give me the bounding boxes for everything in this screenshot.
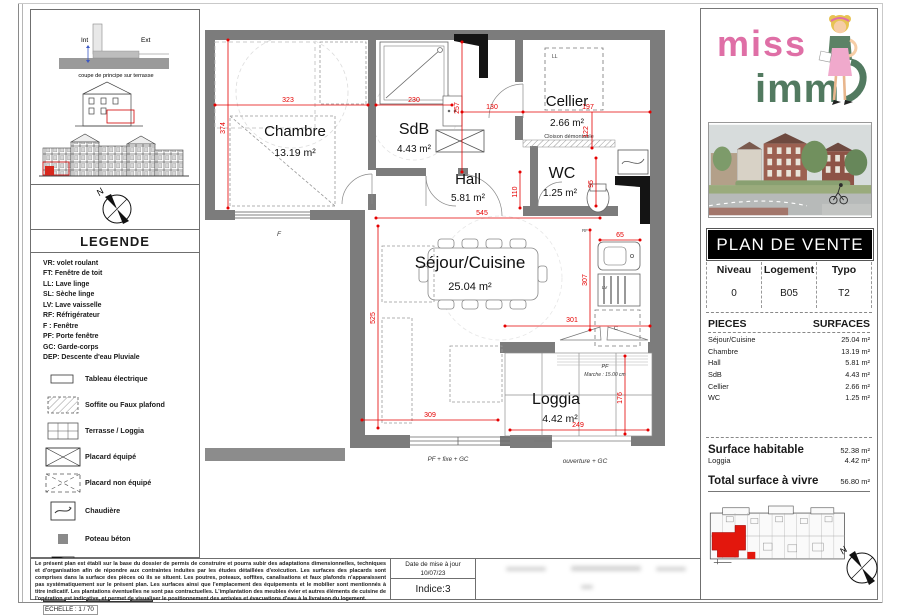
surfaces-summary: Surface habitable52.38 m² Loggia4.42 m² … xyxy=(708,444,870,492)
street-elevation xyxy=(39,134,189,176)
legend-item: Tableau électrique xyxy=(31,366,199,392)
room-label-hall: Hall xyxy=(455,171,481,188)
shower xyxy=(380,42,448,104)
placard-equipe-hall xyxy=(436,130,484,152)
piece-row: SdB4.43 m² xyxy=(708,369,870,381)
svg-text:230: 230 xyxy=(408,97,420,104)
room-label-wc: WC xyxy=(549,165,576,182)
pf-fixe-gc-note: PF + fixe + GC xyxy=(428,456,469,463)
room-area-chambre: 13.19 m² xyxy=(274,147,316,159)
key-plan xyxy=(705,500,855,572)
gaine-technique-shaft-wc xyxy=(615,176,650,224)
cloison-demontable xyxy=(523,140,615,147)
elevation-unit-red xyxy=(45,166,54,175)
legend-abbr-line: GC: Garde-corps xyxy=(43,343,199,353)
room-label-loggia: Loggia xyxy=(532,391,580,408)
surface-loggia-value: 4.42 m² xyxy=(845,456,870,465)
surface-total-label: Total surface à vivre xyxy=(708,475,818,487)
typo-header: Typo xyxy=(817,264,871,276)
legend-item-label: Placard non équipé xyxy=(85,478,151,487)
svg-text:257: 257 xyxy=(454,102,461,114)
north-compass: N xyxy=(31,185,199,229)
coupe-caption: coupe de principe sur terrasse xyxy=(78,73,153,79)
chaudiere-icon xyxy=(41,501,85,521)
soffite-dashed xyxy=(215,42,315,128)
legend-abbr-line: LV: Lave vaisselle xyxy=(43,301,199,311)
window-f xyxy=(235,210,310,220)
ext-label: Ext xyxy=(141,37,151,44)
svg-text:65: 65 xyxy=(616,232,624,239)
dining-table xyxy=(419,239,547,309)
svg-text:301: 301 xyxy=(566,317,578,324)
legend-abbr-line: PF: Porte fenêtre xyxy=(43,332,199,342)
legend-item-label: Soffite ou Faux plafond xyxy=(85,400,165,409)
legend-abbr-line: LL: Lave linge xyxy=(43,280,199,290)
logement-header: Logement xyxy=(762,264,816,276)
legend-item: Placard équipé xyxy=(31,444,199,470)
legend-abbr-line: RF: Réfrigérateur xyxy=(43,311,199,321)
svg-text:122: 122 xyxy=(583,126,590,138)
surface-loggia-label: Loggia xyxy=(708,456,731,465)
typo-value: T2 xyxy=(817,288,871,299)
room-label-sejour: Séjour/Cuisine xyxy=(415,253,526,272)
terrace-section-drawing: Int Ext coupe de principe sur terrasse xyxy=(31,10,199,184)
missimmo-logo: miss imm xyxy=(705,10,875,120)
room-area-sejour: 25.04 m² xyxy=(448,281,492,293)
info-col-niveau: Niveau 0 xyxy=(706,262,762,308)
svg-text:130: 130 xyxy=(486,104,498,111)
svg-text:110: 110 xyxy=(512,186,519,197)
room-label-sdb: SdB xyxy=(399,121,429,138)
surface-habitable-label: Surface habitable xyxy=(708,444,804,456)
indice-value: Indice:3 xyxy=(415,584,450,595)
ll-label: LL xyxy=(552,54,558,60)
soffite-faux-plafond-icon xyxy=(41,396,85,414)
svg-text:309: 309 xyxy=(424,412,436,419)
legend-item-label: Terrasse / Loggia xyxy=(85,426,144,435)
surface-total-value: 56.80 m² xyxy=(840,477,870,486)
logement-value: B05 xyxy=(762,288,816,299)
dashed-separator xyxy=(706,312,872,313)
section-step xyxy=(93,51,139,58)
room-area-wc: 1.25 m² xyxy=(543,188,578,199)
compass-north-label: N xyxy=(94,186,106,198)
piece-row: Chambre13.19 m² xyxy=(708,346,870,358)
highlighted-unit-loggia xyxy=(747,552,755,559)
ouverture-gc-note: ouverture + GC xyxy=(563,458,608,465)
pf-note: PF xyxy=(601,364,609,370)
neighbor-wall xyxy=(205,448,345,461)
legend-abbreviations: VR: volet roulant FT: Fenêtre de toit LL… xyxy=(31,253,199,366)
gaine-technique-shaft xyxy=(454,34,488,78)
piece-row: Cellier2.66 m² xyxy=(708,381,870,393)
svg-text:374: 374 xyxy=(220,122,227,134)
info-col-logement: Logement B05 xyxy=(762,262,817,308)
svg-text:249: 249 xyxy=(572,422,584,429)
svg-text:197: 197 xyxy=(582,104,594,111)
logo-miss-text: miss xyxy=(717,23,807,64)
legend-item: Poteau béton xyxy=(31,526,199,552)
pieces-surfaces-header: PIECES SURFACES xyxy=(708,318,870,333)
legend-box: LEGENDE VR: volet roulant FT: Fenêtre de… xyxy=(30,229,200,558)
section-slab xyxy=(59,58,169,69)
svg-text:95: 95 xyxy=(588,180,595,188)
room-label-chambre: Chambre xyxy=(264,123,326,140)
compass-box: N xyxy=(30,184,200,230)
room-area-sdb: 4.43 m² xyxy=(397,144,432,155)
legend-abbr-line: VR: volet roulant xyxy=(43,259,199,269)
rf-label: RF xyxy=(582,228,588,233)
loggia-door-leaves xyxy=(560,327,648,340)
pieces-header: PIECES xyxy=(708,318,747,330)
date-cell: Date de mise à jour 10/07/23 xyxy=(390,558,476,579)
svg-text:525: 525 xyxy=(370,312,377,324)
placard-equipe-icon xyxy=(41,447,85,467)
poteau-beton-icon xyxy=(41,533,85,545)
legend-item: Chaudière xyxy=(31,496,199,526)
legend-item-label: Chaudière xyxy=(85,506,120,515)
section-wall xyxy=(93,24,102,54)
chaudiere xyxy=(618,150,648,174)
svg-text:545: 545 xyxy=(476,210,488,217)
lave-vaisselle: LV xyxy=(598,274,640,306)
svg-text:176: 176 xyxy=(617,392,624,404)
cuisine-c-dashed: C xyxy=(595,310,640,346)
surfaces-header: SURFACES xyxy=(813,318,870,330)
pieces-list: Séjour/Cuisine25.04 m² Chambre13.19 m² H… xyxy=(708,334,870,404)
building-section-elevation xyxy=(75,82,143,126)
dashed-separator xyxy=(706,437,872,438)
disclaimer-text: Le présent plan est établi sur la base d… xyxy=(30,558,391,600)
sheet-border-inner xyxy=(22,3,23,603)
legend-abbr-line: FT: Fenêtre de toit xyxy=(43,269,199,279)
logo-imm-text: imm xyxy=(755,67,840,111)
legend-title: LEGENDE xyxy=(31,230,199,253)
c-label: C xyxy=(614,326,618,332)
redacted-cell xyxy=(475,558,701,600)
floor-plan: F xyxy=(200,8,700,556)
date-value: 10/07/23 xyxy=(391,570,475,579)
plan-de-vente-sheet: { "coupe": {"int_label": "Int", "ext_lab… xyxy=(0,0,900,605)
window-f-label: F xyxy=(277,231,282,238)
legend-abbr-line: DEP: Descente d'eau Pluviale xyxy=(43,353,199,363)
legend-item: Terrasse / Loggia xyxy=(31,418,199,444)
plan-de-vente-title: PLAN DE VENTE xyxy=(716,235,863,255)
placard-non-equipe-icon xyxy=(41,473,85,493)
legend-item: Soffite ou Faux plafond xyxy=(31,392,199,418)
plan-de-vente-banner: PLAN DE VENTE xyxy=(708,230,872,259)
marche-note: Marche : 15.00 cm xyxy=(584,372,625,378)
sheet-border-top xyxy=(18,3,883,4)
legend-item-label: Tableau électrique xyxy=(85,374,148,383)
echelle-label: ECHELLE : 1 / 70 xyxy=(43,605,98,615)
closet-dashed xyxy=(320,42,366,104)
legend-item: Placard non équipé xyxy=(31,470,199,496)
piece-row: Séjour/Cuisine25.04 m² xyxy=(708,334,870,346)
panel-north-compass: N xyxy=(838,540,882,590)
piece-row: Hall5.81 m² xyxy=(708,357,870,369)
date-label: Date de mise à jour xyxy=(391,561,475,570)
piece-row: WC1.25 m² xyxy=(708,392,870,404)
panel-compass-north-label: N xyxy=(838,544,850,556)
svg-text:307: 307 xyxy=(582,274,589,286)
info-col-typo: Typo T2 xyxy=(817,262,872,308)
int-label: Int xyxy=(81,37,88,44)
legend-item-label: Poteau béton xyxy=(85,534,131,543)
tableau-electrique-icon xyxy=(41,373,85,385)
project-photo xyxy=(708,122,872,218)
bay-window-pf-fixe xyxy=(410,437,510,445)
terrace-section-box: Int Ext coupe de principe sur terrasse xyxy=(30,9,200,185)
indice-cell: Indice:3 xyxy=(390,578,476,600)
legend-abbr-line: SL: Sèche linge xyxy=(43,290,199,300)
room-area-hall: 5.81 m² xyxy=(451,193,486,204)
terrasse-loggia-icon xyxy=(41,422,85,440)
niveau-value: 0 xyxy=(707,288,761,299)
legend-abbr-line: F : Fenêtre xyxy=(43,322,199,332)
niveau-header: Niveau xyxy=(707,264,761,276)
svg-text:323: 323 xyxy=(282,97,294,104)
legend-item-label: Placard équipé xyxy=(85,452,136,461)
room-area-cellier: 2.66 m² xyxy=(550,118,585,129)
sheet-border xyxy=(18,3,19,603)
unit-info-table: Niveau 0 Logement B05 Typo T2 xyxy=(706,262,872,308)
surface-habitable-value: 52.38 m² xyxy=(840,446,870,455)
sheet-border-right xyxy=(882,3,883,603)
kitchen-sink xyxy=(598,242,640,270)
